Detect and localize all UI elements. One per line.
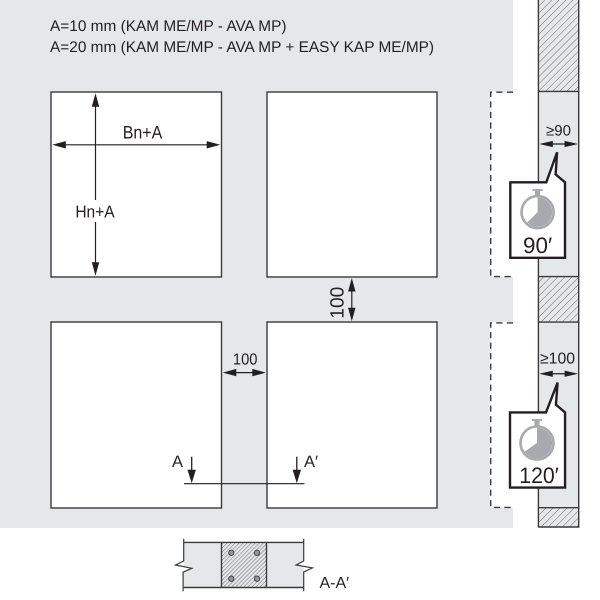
svg-text:100: 100 (233, 352, 258, 369)
svg-text:≥90: ≥90 (546, 122, 571, 139)
svg-text:A=10 mm (KAM ME/MP - AVA MP): A=10 mm (KAM ME/MP - AVA MP) (50, 18, 286, 35)
svg-text:Bn+A: Bn+A (123, 123, 163, 143)
svg-text:Hn+A: Hn+A (75, 201, 115, 221)
svg-text:A: A (172, 453, 183, 471)
svg-text:A-A′: A-A′ (320, 575, 350, 592)
svg-text:100: 100 (328, 287, 349, 319)
svg-text:90′: 90′ (523, 233, 552, 258)
svg-text:A=20 mm (KAM ME/MP - AVA MP +: A=20 mm (KAM ME/MP - AVA MP + EASY KAP M… (50, 39, 434, 56)
svg-text:≥100: ≥100 (540, 351, 575, 368)
svg-text:A′: A′ (304, 453, 318, 471)
svg-text:120′: 120′ (519, 463, 558, 488)
